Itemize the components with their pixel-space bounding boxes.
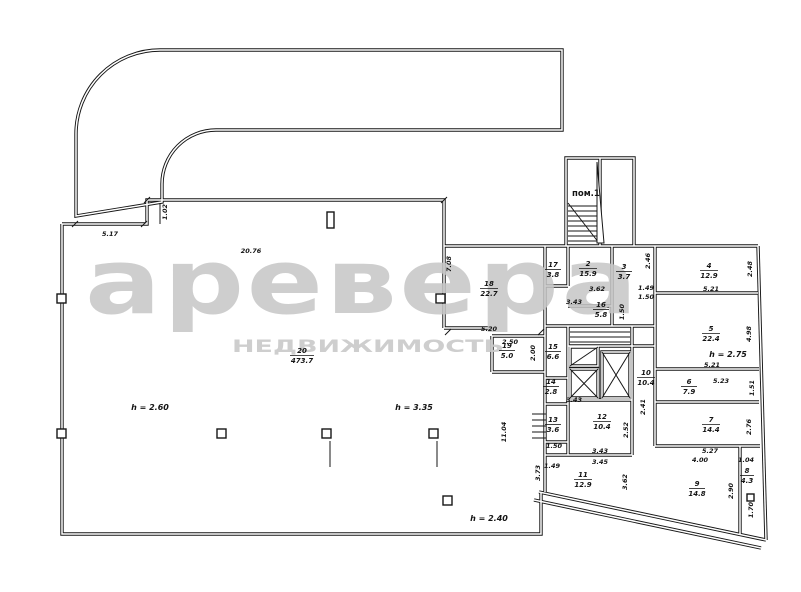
- dim-1-51: 1.51: [748, 380, 756, 396]
- svg-text:15.9: 15.9: [579, 270, 596, 278]
- dim-4-00: 4.00: [692, 456, 709, 464]
- svg-text:4: 4: [707, 262, 712, 270]
- watermark-subtitle: НЕДВИЖИМОСТЬ: [232, 337, 504, 357]
- svg-text:3.6: 3.6: [547, 426, 560, 434]
- room-label-11: 11 12.9: [574, 471, 592, 489]
- dim-1-02: 1.02: [161, 204, 169, 221]
- room-label-4: 4 12.9: [700, 262, 718, 280]
- height-hall-bottom: h = 2.40: [470, 514, 508, 523]
- room-label-6: 6 7.9: [681, 378, 697, 396]
- svg-text:2: 2: [586, 260, 591, 268]
- svg-text:22.7: 22.7: [480, 290, 497, 298]
- elevator-2-x: [602, 352, 630, 398]
- dim-1-49-b: 1.49: [544, 462, 561, 470]
- svg-text:15: 15: [548, 343, 558, 351]
- floor-plan-page: аревера НЕДВИЖИМОСТЬ 20 473.7 18 22.7 19…: [0, 0, 801, 592]
- svg-text:3: 3: [622, 263, 627, 271]
- svg-text:14.4: 14.4: [702, 426, 719, 434]
- dim-2-90: 2.90: [727, 483, 735, 500]
- stairwell-label: пом.1: [572, 189, 600, 199]
- svg-text:5.8: 5.8: [595, 311, 608, 319]
- dim-3-62-a: 3.62: [589, 285, 606, 293]
- dim-1-50-b: 1.50: [546, 442, 563, 450]
- dim-20-76: 20.76: [241, 247, 262, 255]
- column: [443, 496, 452, 505]
- column: [217, 429, 226, 438]
- height-room5: h = 2.75: [709, 350, 747, 359]
- column: [322, 429, 331, 438]
- top-wall-column: [327, 212, 334, 228]
- svg-text:11: 11: [578, 471, 588, 479]
- dim-3-62-b: 3.62: [621, 474, 629, 491]
- svg-text:2.8: 2.8: [545, 388, 558, 396]
- pilaster: [57, 429, 66, 438]
- floor-plan-canvas: аревера НЕДВИЖИМОСТЬ 20 473.7 18 22.7 19…: [0, 0, 801, 592]
- svg-text:473.7: 473.7: [291, 357, 313, 365]
- svg-text:8: 8: [745, 467, 750, 475]
- dim-5-21-b: 5.21: [704, 361, 720, 369]
- dim-7-08: 7.08: [445, 256, 453, 273]
- dim-5-23: 5.23: [713, 377, 730, 385]
- svg-text:17: 17: [548, 261, 558, 269]
- dim-1-49-a: 1.49: [638, 284, 655, 292]
- dim-5-27: 5.27: [702, 447, 719, 455]
- dim-3-73: 3.73: [534, 465, 542, 482]
- dim-5-17: 5.17: [102, 230, 119, 238]
- svg-text:16: 16: [596, 301, 606, 309]
- dim-5-20: 5.20: [481, 325, 498, 333]
- svg-text:10.4: 10.4: [593, 423, 610, 431]
- ramp-wall: [76, 50, 562, 216]
- dim-2-48: 2.48: [746, 261, 754, 278]
- watermark-logo: аревера: [85, 230, 640, 335]
- dim-3-45: 3.45: [592, 458, 609, 466]
- svg-text:22.4: 22.4: [702, 335, 719, 343]
- dim-2-76: 2.76: [745, 419, 753, 436]
- dim-2-46: 2.46: [644, 253, 652, 270]
- dim-11-04: 11.04: [500, 421, 508, 442]
- pilaster: [57, 294, 66, 303]
- room-label-5: 5 22.4: [702, 325, 720, 343]
- room-label-12: 12 10.4: [593, 413, 611, 431]
- elevator-1-x: [570, 369, 598, 398]
- shaft-1-diagonal: [570, 347, 598, 366]
- height-hall-right: h = 3.35: [395, 403, 433, 412]
- dim-2-50: 2.50: [502, 338, 519, 346]
- svg-text:6: 6: [687, 378, 692, 386]
- wing-diagonal-wall-inner: [534, 500, 761, 548]
- svg-text:7: 7: [709, 416, 714, 424]
- svg-text:12.9: 12.9: [700, 272, 717, 280]
- room-label-8: 8 4.3: [740, 467, 754, 485]
- dim-2-52: 2.52: [622, 422, 630, 439]
- svg-text:3.7: 3.7: [618, 273, 631, 281]
- svg-text:7.9: 7.9: [683, 388, 696, 396]
- dim-2-00: 2.00: [529, 345, 537, 362]
- room-label-7: 7 14.4: [702, 416, 720, 434]
- dim-3-43-a: 3.43: [566, 298, 583, 306]
- door-block: [747, 494, 754, 501]
- height-hall-left: h = 2.60: [131, 403, 169, 412]
- room-label-13: 13 3.6: [545, 416, 561, 434]
- dim-4-98: 4.98: [745, 326, 753, 343]
- svg-text:10.4: 10.4: [637, 379, 654, 387]
- dim-1-50-a: 1.50: [638, 293, 655, 301]
- room-label-10: 10 10.4: [637, 369, 655, 387]
- svg-text:6.6: 6.6: [547, 353, 560, 361]
- svg-text:13: 13: [548, 416, 558, 424]
- svg-text:12.9: 12.9: [574, 481, 591, 489]
- dim-1-50-c: 1.50: [618, 304, 626, 321]
- svg-text:3.8: 3.8: [547, 271, 560, 279]
- svg-text:14.8: 14.8: [688, 490, 705, 498]
- svg-text:18: 18: [484, 280, 494, 288]
- svg-text:9: 9: [695, 480, 700, 488]
- dim-5-21-a: 5.21: [703, 285, 719, 293]
- column: [429, 429, 438, 438]
- room-label-9: 9 14.8: [688, 480, 705, 498]
- svg-text:14: 14: [546, 378, 556, 386]
- dim-1-70: 1.70: [747, 502, 755, 519]
- svg-text:10: 10: [641, 369, 651, 377]
- wing-right-wall: [758, 246, 766, 540]
- watermark: аревера НЕДВИЖИМОСТЬ: [85, 230, 640, 357]
- svg-text:12: 12: [597, 413, 607, 421]
- dim-1-04: 1.04: [738, 456, 755, 464]
- ramp-wall: [76, 50, 562, 216]
- dim-3-43-c: 3.43: [566, 396, 583, 404]
- svg-text:4.3: 4.3: [741, 477, 754, 485]
- svg-text:5: 5: [709, 325, 714, 333]
- dim-3-43-b: 3.43: [592, 447, 609, 455]
- svg-text:5.0: 5.0: [501, 352, 514, 360]
- dim-2-41: 2.41: [639, 399, 647, 415]
- room-label-15: 15 6.6: [545, 343, 561, 361]
- svg-text:20: 20: [297, 347, 307, 355]
